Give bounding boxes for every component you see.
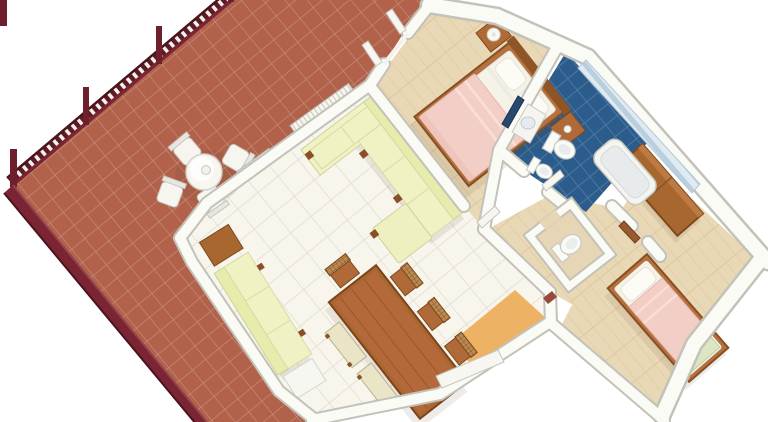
- floor-plan-screenshot: [0, 0, 768, 422]
- railing-post: [83, 87, 89, 125]
- table-jug: [202, 166, 211, 175]
- floor-plan-render: [0, 0, 768, 422]
- railing-post: [228, 0, 234, 2]
- railing-post: [0, 0, 7, 26]
- railing-post: [10, 149, 17, 187]
- railing-post: [156, 26, 162, 64]
